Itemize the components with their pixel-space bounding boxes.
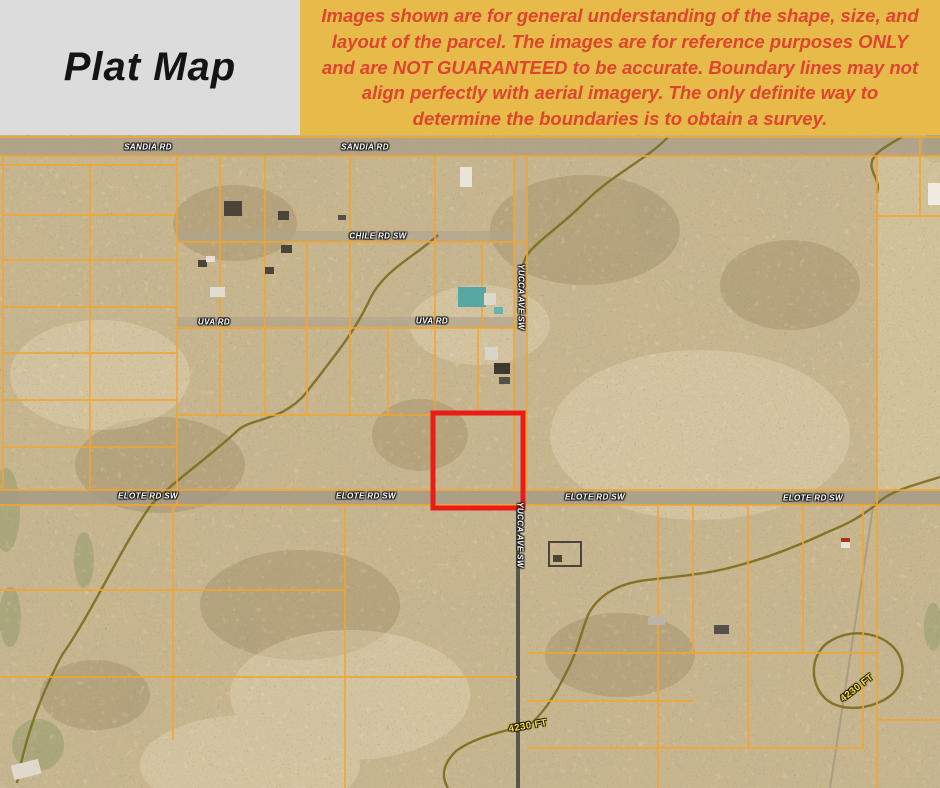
elevation-label: 4230 FT <box>838 672 875 705</box>
disclaimer-text: Images shown are for general understandi… <box>300 0 940 138</box>
plat-map-page: Plat Map Images shown are for general un… <box>0 0 940 788</box>
road-label: ELOTE RD SW <box>565 493 625 502</box>
header: Plat Map Images shown are for general un… <box>0 0 940 135</box>
road-label: SANDIA RD <box>341 143 389 152</box>
disclaimer-banner: Images shown are for general understandi… <box>300 0 940 135</box>
road-label: YUCCA AVE SW <box>516 502 525 568</box>
road-label: CHILE RD SW <box>349 232 406 241</box>
title-panel: Plat Map <box>0 0 300 135</box>
road-label: UVA RD <box>416 317 448 326</box>
road-label: ELOTE RD SW <box>783 494 843 503</box>
elevation-label: 4230 FT <box>508 717 548 735</box>
plat-map-image: SANDIA RDSANDIA RDCHILE RD SWUVA RDUVA R… <box>0 135 940 788</box>
road-label: ELOTE RD SW <box>336 492 396 501</box>
road-label: ELOTE RD SW <box>118 492 178 501</box>
road-label: YUCCA AVE SW <box>517 264 526 330</box>
road-label: SANDIA RD <box>124 143 172 152</box>
map-labels: SANDIA RDSANDIA RDCHILE RD SWUVA RDUVA R… <box>0 135 940 788</box>
page-title: Plat Map <box>64 45 236 90</box>
road-label: UVA RD <box>198 318 230 327</box>
